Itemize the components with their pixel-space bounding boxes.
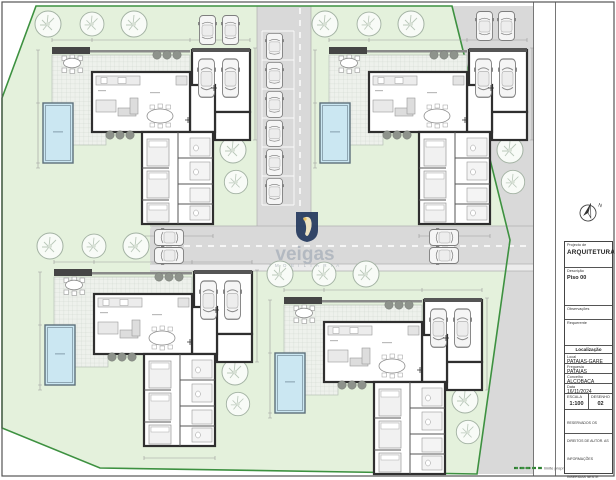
title-block-observations: Observações: [565, 306, 612, 320]
veigas-subtitle-text: I M O B I L I Á R I A: [269, 262, 340, 268]
description-label: Descrição: [567, 269, 610, 274]
project-value: ARQUITETURA: [567, 250, 610, 257]
scale-cell: ESCALA 1:100: [565, 394, 588, 409]
title-block-description: Descrição Piso 00: [565, 268, 612, 306]
title-block-parish: Freguesia PATAIAS: [565, 364, 612, 374]
title-block-municipality: Concelho ALCOBAÇA: [565, 374, 612, 384]
title-block-scale-drawing: ESCALA 1:100 DESENHO 02: [565, 394, 612, 410]
drawing-label: DESENHO: [591, 395, 610, 400]
sidewalk: [150, 264, 533, 271]
title-block-location-header: Localização: [565, 346, 612, 354]
scale-label: ESCALA: [567, 395, 586, 400]
title-block-note: RESERVADOS OS DIREITOS DE AUTOR. AS INFO…: [565, 410, 612, 434]
veigas-brand-text: veigas: [275, 244, 334, 265]
road-horizontal: [150, 226, 533, 264]
observations-label: Observações: [567, 307, 610, 312]
title-block-applicant: Requerente: [565, 320, 612, 346]
project-label: Projecto de: [567, 243, 610, 248]
location-header: Localização: [565, 346, 612, 353]
applicant-label: Requerente: [567, 321, 610, 326]
title-block: Projecto de ARQUITETURA Descrição Piso 0…: [564, 241, 613, 474]
scale-value: 1:100: [567, 401, 586, 407]
title-block-project: Projecto de ARQUITETURA: [565, 242, 612, 268]
drawing-number-cell: DESENHO 02: [588, 394, 612, 409]
description-value: Piso 00: [567, 275, 610, 281]
drawing-number-value: 02: [591, 401, 610, 407]
site-plan-drawing: veigas I M O B I L I Á R I A N limite pr…: [0, 0, 616, 480]
title-block-local: Local PATAIAS-GARE: [565, 354, 612, 364]
title-block-empty: [565, 434, 612, 473]
architectural-sheet: veigas I M O B I L I Á R I A N limite pr…: [0, 0, 616, 480]
title-block-date: Data 16/11/2024: [565, 384, 612, 394]
